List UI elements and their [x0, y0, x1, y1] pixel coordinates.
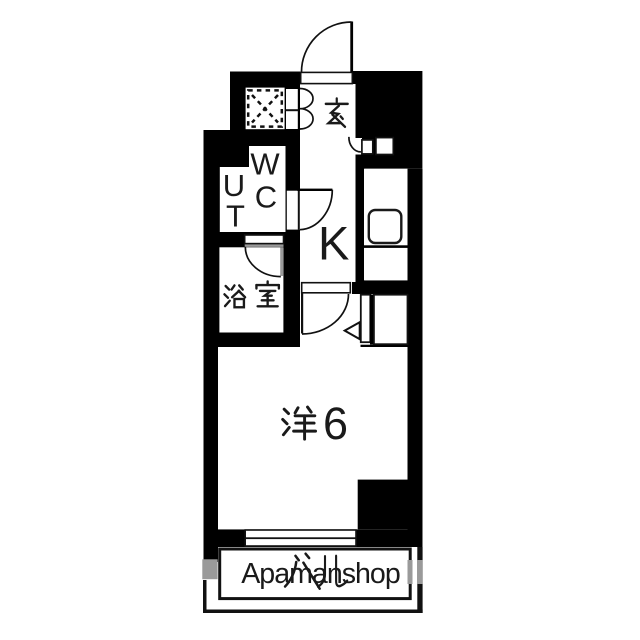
- svg-text:C: C: [255, 180, 277, 215]
- svg-text:K: K: [318, 217, 349, 270]
- svg-text:6: 6: [323, 398, 348, 449]
- svg-text:T: T: [226, 199, 245, 234]
- svg-text:Apamanshop: Apamanshop: [241, 558, 400, 590]
- svg-text:W: W: [250, 147, 280, 182]
